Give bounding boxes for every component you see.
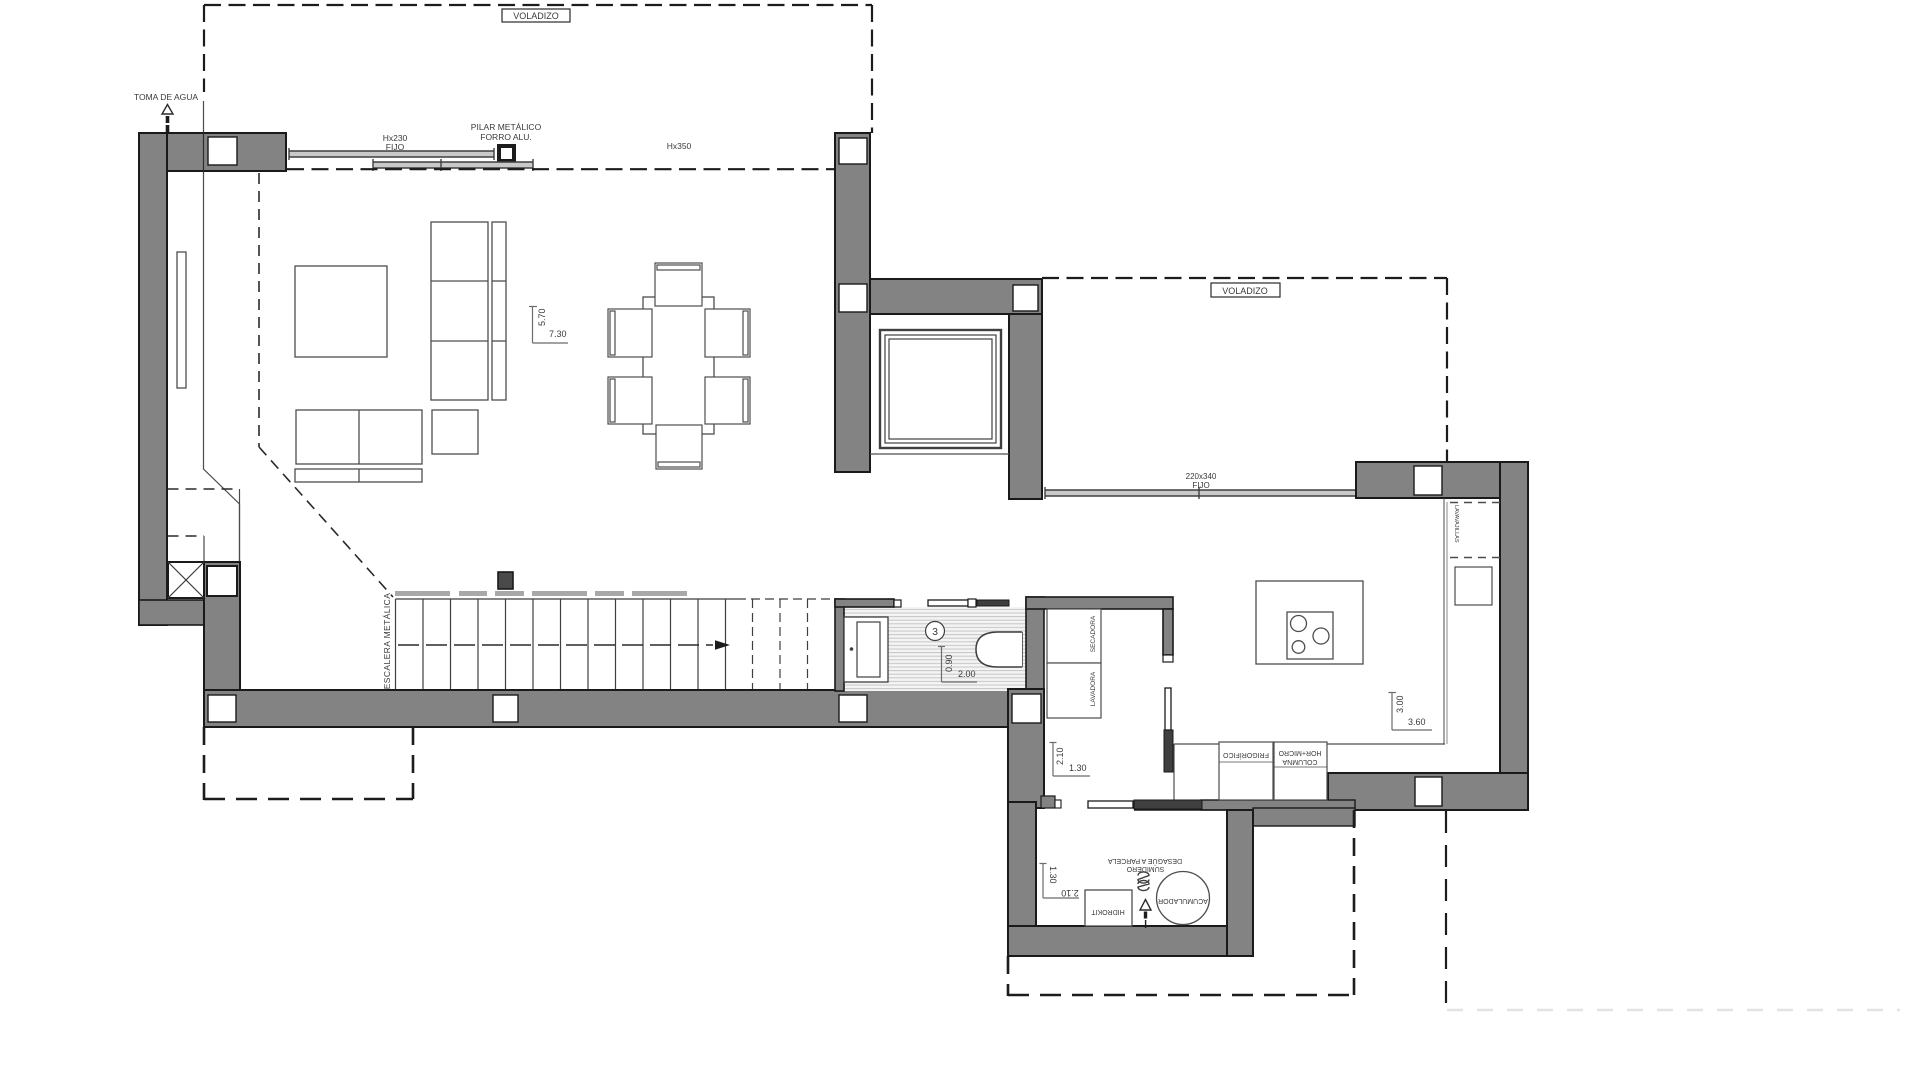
svg-text:FRIGORÍFICO: FRIGORÍFICO <box>1223 751 1269 760</box>
svg-text:ESCALERA METÁLICA: ESCALERA METÁLICA <box>382 593 392 690</box>
svg-text:FIJO: FIJO <box>386 142 405 152</box>
svg-text:3.60: 3.60 <box>1408 717 1426 727</box>
svg-text:LAVAVAJILLAS: LAVAVAJILLAS <box>1453 505 1459 543</box>
svg-text:220x340: 220x340 <box>1186 472 1217 481</box>
svg-text:1.30: 1.30 <box>1069 763 1087 773</box>
svg-text:2.10: 2.10 <box>1055 747 1065 765</box>
svg-text:SECADORA: SECADORA <box>1090 615 1097 652</box>
svg-text:FORRO ALU.: FORRO ALU. <box>480 132 531 142</box>
svg-text:VOLADIZO: VOLADIZO <box>513 11 559 21</box>
svg-text:5.70: 5.70 <box>537 308 547 326</box>
svg-text:COLUMNA: COLUMNA <box>1282 758 1317 765</box>
svg-text:PILAR METÁLICO: PILAR METÁLICO <box>471 122 542 132</box>
svg-text:SUMIDERO: SUMIDERO <box>1126 865 1164 872</box>
svg-text:HIDROKIT: HIDROKIT <box>1091 908 1125 915</box>
svg-text:0.90: 0.90 <box>944 654 954 672</box>
svg-text:HOR+MICRO: HOR+MICRO <box>1278 749 1322 756</box>
svg-text:VOLADIZO: VOLADIZO <box>1222 286 1268 296</box>
svg-text:ACUMULADOR: ACUMULADOR <box>1158 897 1208 904</box>
svg-text:FIJO: FIJO <box>1192 481 1209 490</box>
svg-text:1.30: 1.30 <box>1048 866 1058 884</box>
svg-text:DESAGÜE A PARCELA: DESAGÜE A PARCELA <box>1108 857 1183 865</box>
svg-text:Hx350: Hx350 <box>667 141 692 151</box>
svg-text:2.10: 2.10 <box>1061 888 1079 898</box>
svg-text:3.00: 3.00 <box>1395 695 1405 713</box>
svg-text:LAVADORA: LAVADORA <box>1090 671 1097 706</box>
svg-text:2.00: 2.00 <box>958 669 976 679</box>
svg-text:3: 3 <box>932 626 938 638</box>
svg-text:TOMA DE AGUA: TOMA DE AGUA <box>134 92 198 102</box>
svg-text:7.30: 7.30 <box>549 329 567 339</box>
